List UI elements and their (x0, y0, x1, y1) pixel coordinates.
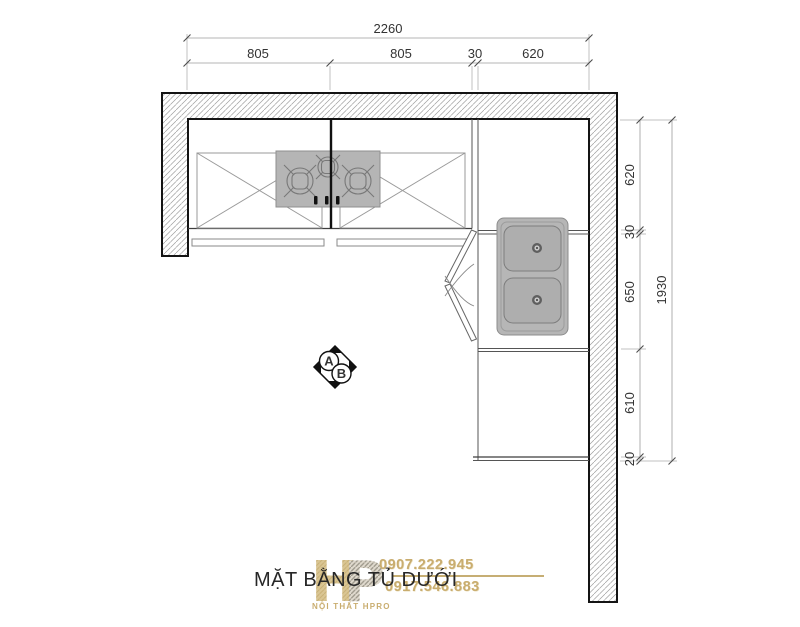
plan-drawing-svg: A B 2260 805 805 30 620 (0, 0, 800, 627)
dim-label-right-seg5: 20 (622, 452, 637, 466)
door-handle-strip-right (337, 239, 469, 246)
watermark-company: NỘI THẤT HPRO (312, 602, 391, 611)
right-dimensions: 620 30 650 610 20 1930 (620, 117, 677, 467)
drawing-title: MẶT BẰNG TỦ DƯỚI (254, 569, 449, 592)
dim-label-total-height: 1930 (654, 276, 669, 305)
section-label-b: B (337, 366, 346, 381)
dim-label-right-seg3: 650 (622, 281, 637, 303)
extension-lines (187, 34, 589, 90)
dim-label-right-seg2: 30 (622, 225, 637, 239)
cooktop (276, 151, 380, 207)
floor-plan-canvas: A B 2260 805 805 30 620 (0, 0, 800, 627)
dim-label-right-seg4: 610 (622, 392, 637, 414)
section-marker: A B (314, 346, 356, 388)
dim-label-top-seg1: 805 (247, 46, 269, 61)
top-dimensions: 2260 805 805 30 620 (184, 21, 593, 90)
dim-label-total-width: 2260 (374, 21, 403, 36)
corner-door-swing (445, 230, 477, 341)
dim-label-right-seg1: 620 (622, 164, 637, 186)
door-handle-strip-left (192, 239, 324, 246)
sink-bowl-top (504, 226, 561, 271)
wall (162, 93, 617, 602)
dim-label-top-seg4: 620 (522, 46, 544, 61)
section-label-a: A (324, 354, 334, 369)
sink-bowl-bottom (504, 278, 561, 323)
dim-label-top-seg3: 30 (468, 46, 482, 61)
dim-label-top-seg2: 805 (390, 46, 412, 61)
sink (497, 218, 568, 335)
